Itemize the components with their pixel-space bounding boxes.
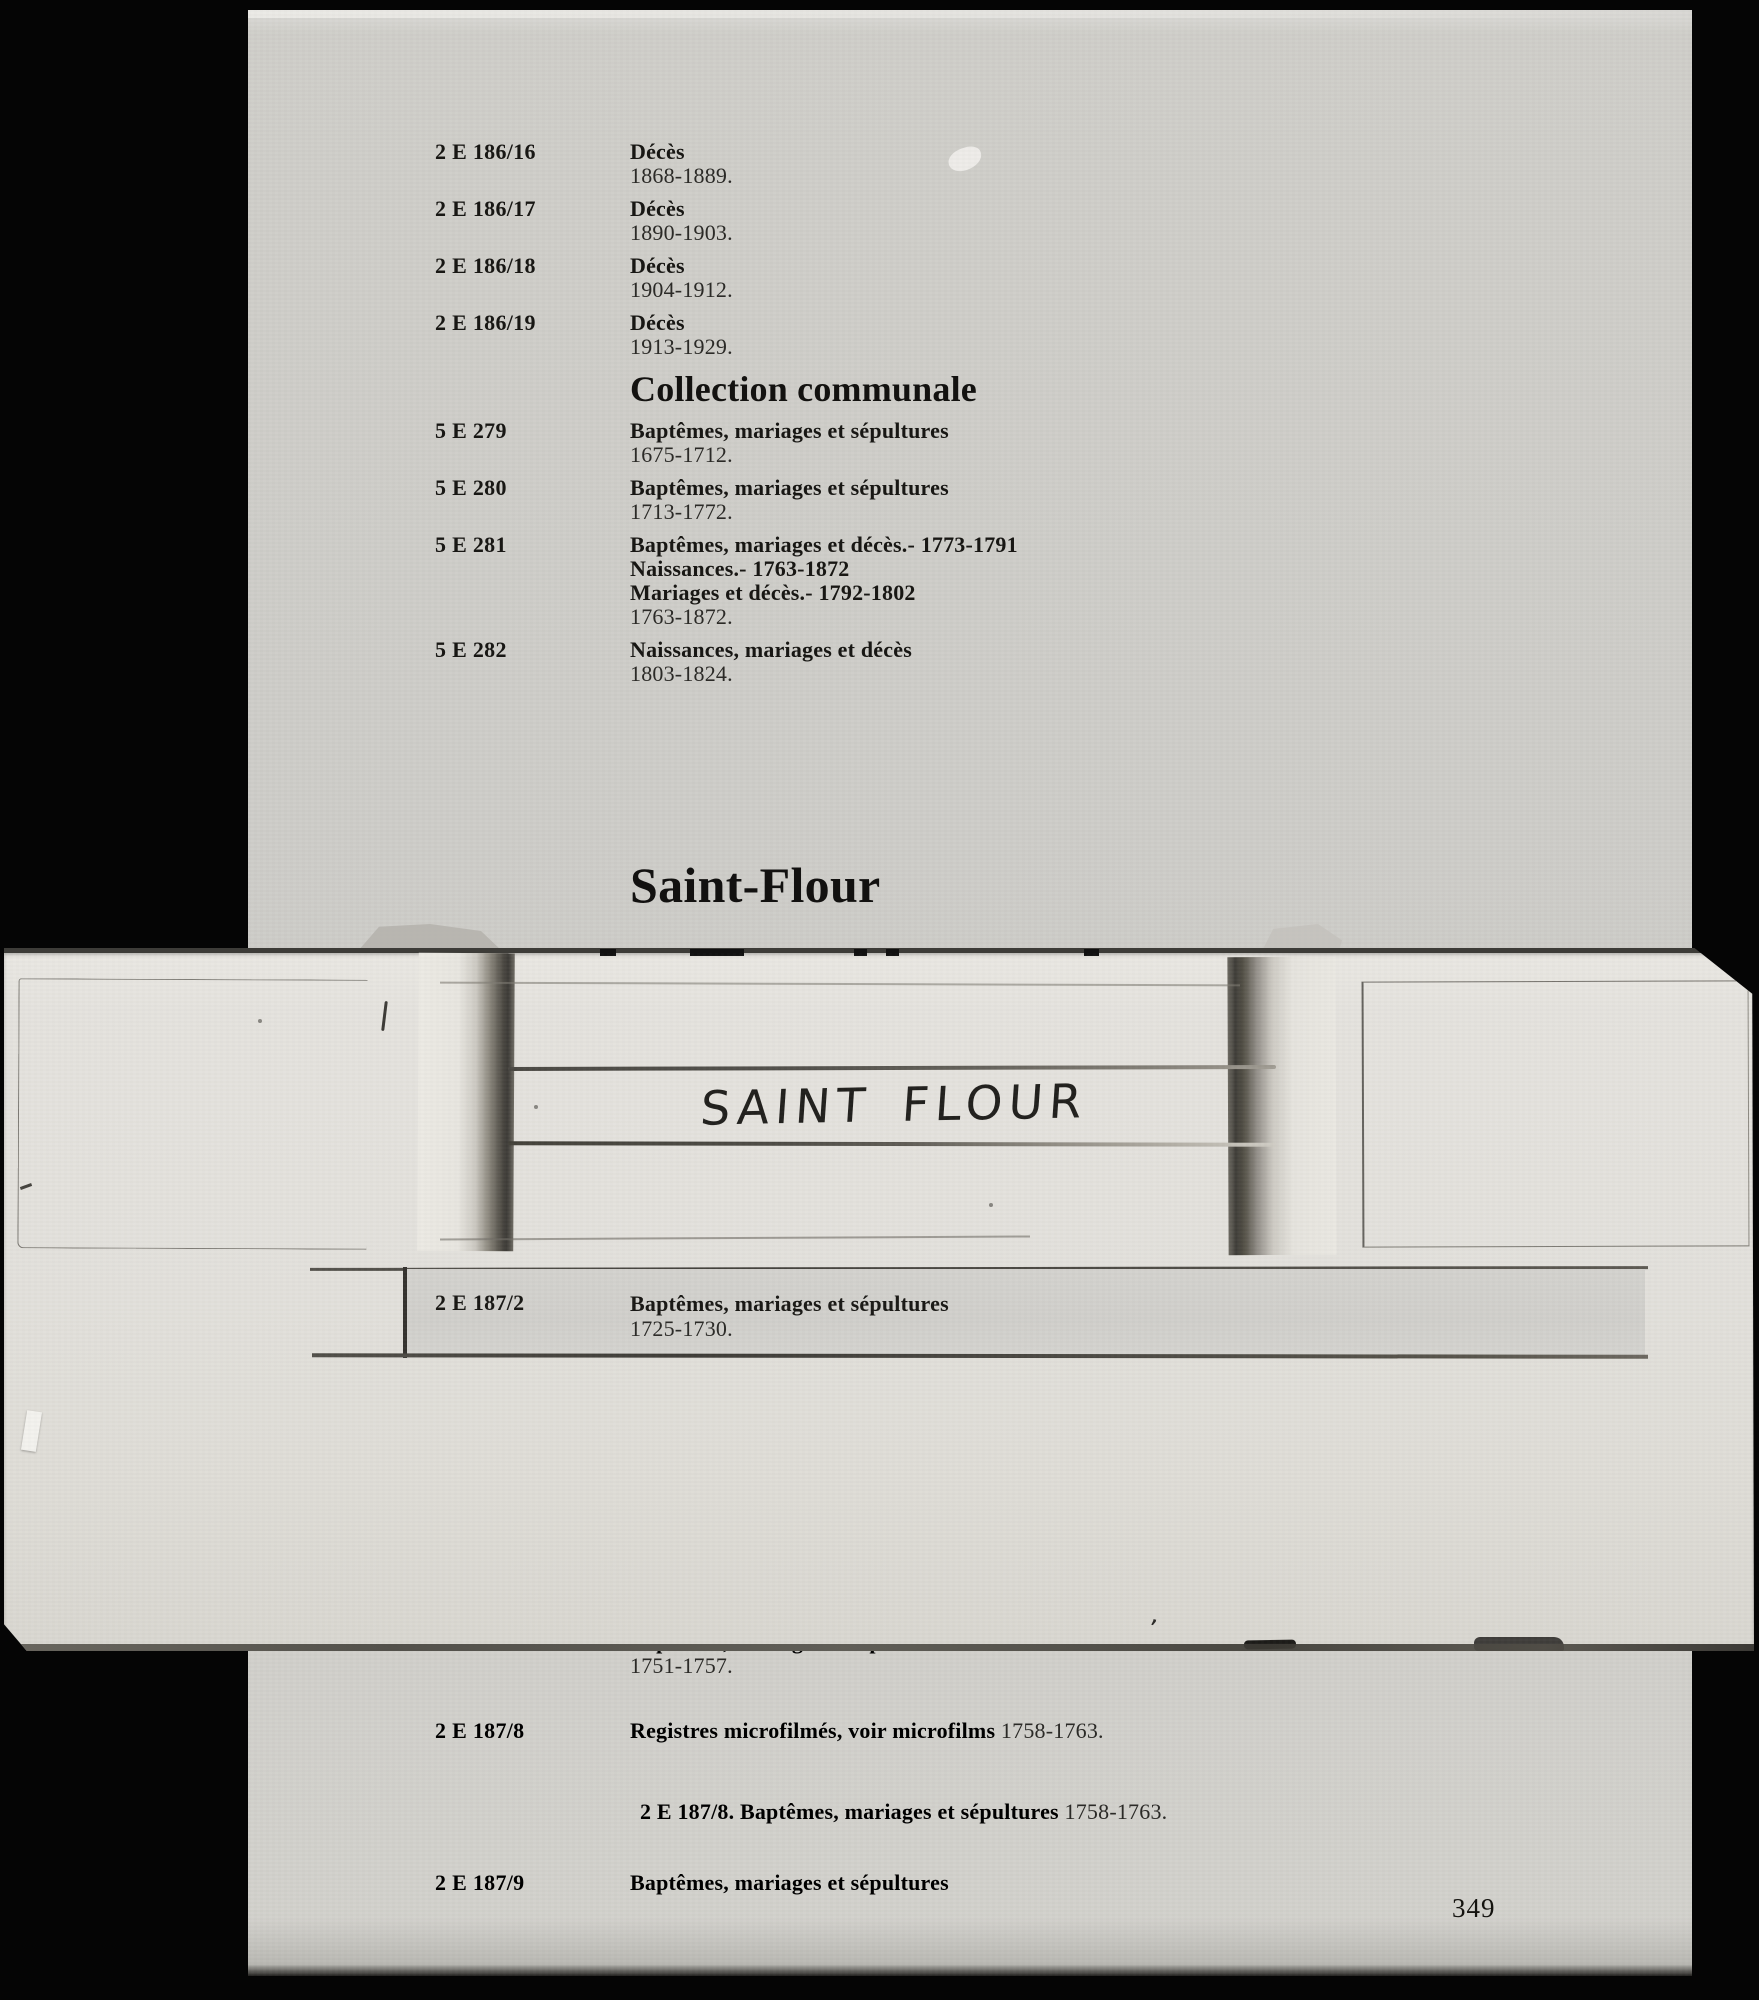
speck xyxy=(989,1203,993,1207)
edge-ink-blob xyxy=(1244,1640,1296,1650)
entry-line: Baptêmes, mariages et sépultures xyxy=(630,1291,1535,1316)
catalog-entry: 2 E 187/2Baptêmes, mariages et sépulture… xyxy=(435,1291,1535,1341)
catalog-entry: 2 E 187/9Baptêmes, mariages et sépulture… xyxy=(435,1871,1585,1895)
tape-strip-right xyxy=(1227,957,1336,1255)
page-number: 349 xyxy=(1452,1893,1496,1924)
pen-mark xyxy=(381,1001,388,1031)
paper-sliver xyxy=(21,1410,42,1452)
entry-line: Registres microfilmés, voir microfilms 1… xyxy=(630,1719,1585,1743)
covered-text-fragment xyxy=(886,949,899,956)
entry-description: Baptêmes, mariages et sépultures1725-173… xyxy=(630,1291,1535,1341)
window-frame-left xyxy=(403,1267,407,1358)
entry-line: 1725-1730. xyxy=(630,1316,1535,1341)
entry-ref: 2 E 187/8 xyxy=(435,1719,630,1743)
speck xyxy=(258,1019,262,1023)
edge-ink-blob xyxy=(1474,1637,1564,1651)
pen-mark-apostrophe: ’ xyxy=(1145,1614,1159,1645)
entry-ref: 2 E 187/9 xyxy=(435,1871,630,1895)
handwritten-title: SAINT FLOUR xyxy=(622,1066,1167,1146)
slip-faint-line-bottom xyxy=(440,1235,1030,1240)
entry-ref: 2 E 187/2 xyxy=(435,1291,630,1341)
tape-strip-left xyxy=(417,953,515,1251)
scanned-archive-page: { "document": { "page_number": "349", "s… xyxy=(0,0,1759,2000)
covered-text-fragment xyxy=(1084,949,1099,956)
catalog-entry: 2 E 187/8Registres microfilmés, voir mic… xyxy=(435,1719,1585,1743)
entry-line: 1751-1757. xyxy=(630,1654,1585,1678)
covered-text-fragment xyxy=(600,949,616,956)
entry-description: Registres microfilmés, voir microfilms 1… xyxy=(630,1719,1585,1743)
slip-faint-line-top xyxy=(440,982,1240,986)
entry-line: 2 E 187/8. Baptêmes, mariages et sépultu… xyxy=(640,1800,1585,1824)
slip-right-panel-outline xyxy=(1362,980,1750,1247)
slip-left-panel-outline xyxy=(17,978,367,1250)
window-entry-2e187-2: 2 E 187/2Baptêmes, mariages et sépulture… xyxy=(435,1291,1535,1350)
window-frame-bottom xyxy=(312,1353,1648,1358)
catalog-entry: 2 E 187/8. Baptêmes, mariages et sépultu… xyxy=(435,1800,1585,1824)
speck xyxy=(534,1105,538,1109)
pasted-label-slip: SAINT FLOUR 2 E 187/2Baptêmes, mariages … xyxy=(4,948,1754,1651)
entry-ref xyxy=(435,1800,630,1824)
covered-text-fragment xyxy=(690,949,744,956)
entry-description: Baptêmes, mariages et sépultures xyxy=(630,1871,1585,1895)
entry-description: 2 E 187/8. Baptêmes, mariages et sépultu… xyxy=(630,1800,1585,1824)
entry-line: Baptêmes, mariages et sépultures xyxy=(630,1871,1585,1895)
covered-text-fragment xyxy=(854,949,867,956)
